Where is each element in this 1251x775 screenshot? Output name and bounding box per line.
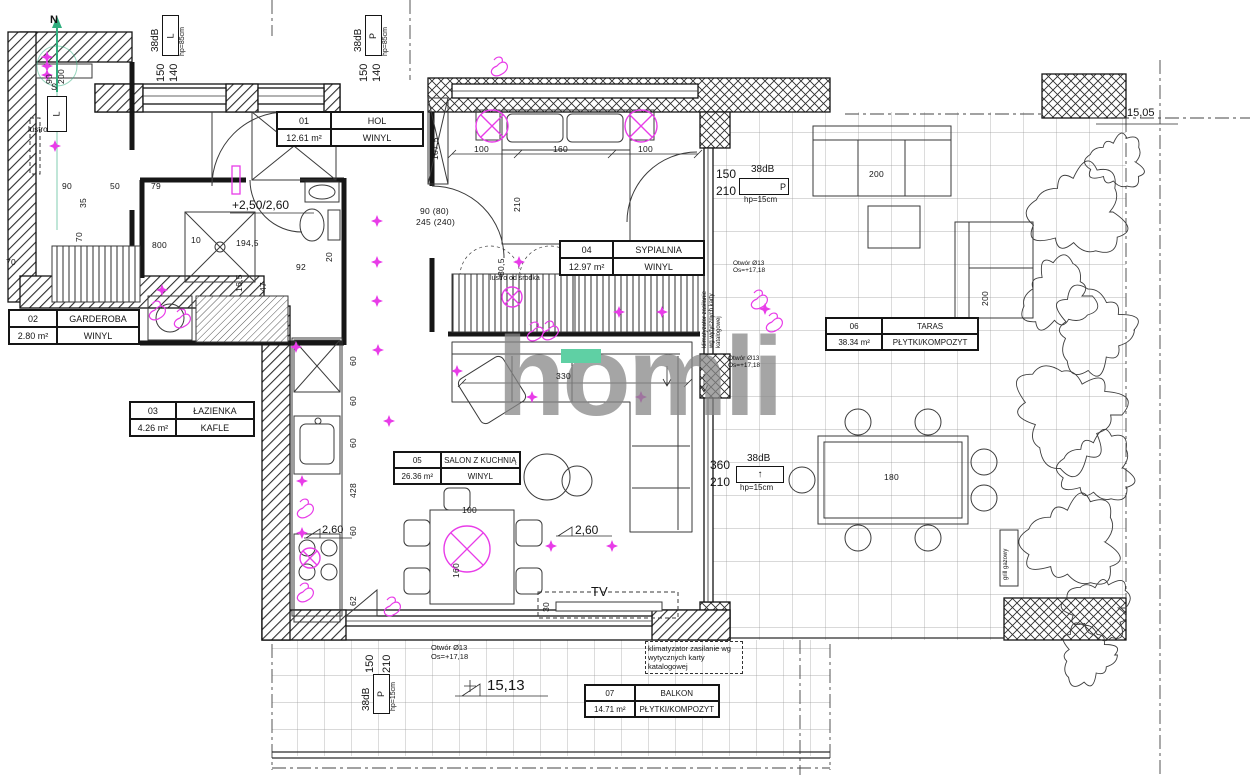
level-balkon-label: 15,13 (487, 677, 525, 694)
window-db-label: 38dB (361, 688, 372, 711)
north-label: N (50, 14, 58, 26)
floorplan-canvas: homli 10016010021080,5107,590 (80)245 (2… (0, 0, 1251, 775)
window-side-label: P (368, 32, 378, 38)
window-symbol: P (739, 178, 789, 195)
hole-label: Otwór Ø13 (728, 355, 760, 362)
window-hp-label: hp=85cm (179, 27, 186, 56)
room-floor: WINYL (331, 129, 423, 146)
ac-note-vertical: klimatyzator zasilanie wg wytycznych kar… (702, 286, 724, 348)
room-label-lazienka: 03 ŁAZIENKA 4.26 m² KAFLE (129, 401, 255, 437)
window-arrow-label: ↑ (758, 469, 763, 480)
window-symbol: ↑ (736, 466, 784, 483)
window-height-label: 140 (168, 64, 180, 82)
window-side-label: P (376, 691, 386, 697)
dimension-label: 245 (240) (416, 217, 455, 227)
window-hp-label: hp=15cm (740, 483, 773, 492)
dimension-label: 180 (884, 472, 899, 482)
room-number: 02 (9, 310, 57, 327)
hole-label: Otwór Ø13 (431, 643, 468, 652)
dimension-label: 194,5 (236, 238, 259, 248)
dimension-label: 30 (541, 602, 551, 612)
dimension-label: 60 (348, 438, 358, 448)
room-area: 4.26 m² (130, 419, 176, 436)
switch-symbol: L (47, 96, 67, 132)
window-width-label: 360 (710, 458, 730, 472)
room-name: ŁAZIENKA (176, 402, 254, 419)
room-floor: PŁYTKI/KOMPOZYT (882, 334, 978, 350)
hole-annotation: Otwór Ø13 Os=+17,18 (431, 643, 468, 661)
level-taras-label: 15,05 (1127, 107, 1155, 119)
window-width-label: 150 (364, 655, 376, 673)
window-symbol: L (162, 15, 179, 56)
window-db-label: 38dB (353, 29, 364, 52)
room-area: 38.34 m² (826, 334, 882, 350)
room-label-sypialnia: 04 SYPIALNIA 12.97 m² WINYL (559, 240, 705, 276)
window-height-label: 210 (710, 475, 730, 489)
window-db-label: 38dB (150, 29, 161, 52)
window-height-label: 210 (381, 655, 393, 673)
room-name: SALON Z KUCHNIĄ (441, 452, 520, 468)
dimension-label: 100 (474, 144, 489, 154)
window-symbol: P (373, 674, 390, 714)
hole-level-label: Os=+17,18 (733, 267, 765, 274)
room-name: GARDEROBA (57, 310, 139, 327)
dimension-label: 92 (296, 262, 306, 272)
bedroom-furniture (428, 98, 698, 332)
room-area: 12.61 m² (277, 129, 331, 146)
dimension-label: 210 (512, 197, 522, 212)
homli-watermark-accent (561, 349, 601, 363)
level-kitchen-label: 2,60 (322, 524, 343, 536)
room-name: HOL (331, 112, 423, 129)
mirror-inside-label: lustro od środka (490, 275, 540, 282)
level-bath-label: +2,50/2,60 (232, 198, 289, 212)
dimension-label: 800 (152, 240, 167, 250)
dimension-label: 90 (62, 181, 72, 191)
window-hp-label: hp=85cm (382, 27, 389, 56)
room-label-taras: 06 TARAS 38.34 m² PŁYTKI/KOMPOZYT (825, 317, 979, 351)
dimension-label: 160 (451, 563, 461, 578)
room-floor: WINYL (441, 468, 520, 484)
room-label-garderoba: 02 GARDEROBA 2.80 m² WINYL (8, 309, 140, 345)
dimension-label: 62 (348, 596, 358, 606)
window-side-label: L (165, 33, 175, 38)
dimension-label: 60 (348, 396, 358, 406)
room-floor: WINYL (57, 327, 139, 344)
dimension-label: 100 (462, 505, 477, 515)
dimension-label: 50 (110, 181, 120, 191)
room-floor: KAFLE (176, 419, 254, 436)
dimension-label: 428 (348, 483, 358, 498)
mirror-label: lustro (28, 125, 48, 134)
room-number: 07 (585, 685, 635, 701)
ac-note-box: klimatyzator zasilanie wg wytycznych kar… (645, 641, 743, 674)
window-width-label: 150 (716, 167, 736, 181)
room-number: 06 (826, 318, 882, 334)
dimension-label: 20 (324, 252, 334, 262)
window-hp-label: hp=15cm (744, 195, 777, 204)
hole-annotation: Otwór Ø13 Os=+17,18 (733, 260, 765, 274)
room-label-hol: 01 HOL 12.61 m² WINYL (276, 111, 424, 147)
window-width-label: 150 (155, 64, 167, 82)
dimension-label: 47 (258, 282, 268, 292)
room-area: 2.80 m² (9, 327, 57, 344)
dimension-label: 200 (56, 69, 66, 84)
window-height-label: 140 (371, 64, 383, 82)
dimension-label: 70 (74, 232, 84, 242)
hole-annotation: Otwór Ø13 Os=+17,18 (728, 355, 760, 369)
south-label: S (51, 82, 57, 92)
room-floor: PŁYTKI/KOMPOZYT (635, 701, 719, 717)
window-width-label: 150 (358, 64, 370, 82)
room-number: 05 (394, 452, 441, 468)
dimension-label: 16,5 (234, 274, 244, 292)
room-name: TARAS (882, 318, 978, 334)
room-label-salon: 05 SALON Z KUCHNIĄ 26.36 m² WINYL (393, 451, 521, 485)
hole-level-label: Os=+17,18 (431, 652, 468, 661)
dimension-label: 100 (638, 144, 653, 154)
dimension-label: 79 (151, 181, 161, 191)
room-area: 14.71 m² (585, 701, 635, 717)
room-area: 12.97 m² (560, 258, 613, 275)
room-name: SYPIALNIA (613, 241, 704, 258)
dimension-label: 60 (348, 526, 358, 536)
grill-label: grill gazowy (1003, 549, 1009, 580)
switch-label: L (52, 111, 62, 116)
window-side-label: P (780, 182, 786, 192)
room-floor: WINYL (613, 258, 704, 275)
dimension-label: 35 (78, 198, 88, 208)
dimension-label: 200 (869, 169, 884, 179)
room-label-balkon: 07 BALKON 14.71 m² PŁYTKI/KOMPOZYT (584, 684, 720, 718)
dimension-label: 160 (553, 144, 568, 154)
dimension-label: 90 (80) (420, 206, 449, 216)
window-height-label: 210 (716, 184, 736, 198)
homli-watermark: homli (497, 312, 781, 441)
hole-label: Otwór Ø13 (733, 260, 765, 267)
dimension-label: 330 (556, 371, 571, 381)
dimension-label: 70 (6, 257, 16, 267)
room-name: BALKON (635, 685, 719, 701)
window-symbol: P (365, 15, 382, 56)
window-db-label: 38dB (751, 164, 774, 175)
dimension-label: 10 (191, 235, 201, 245)
dimension-label: 200 (980, 291, 990, 306)
hole-level-label: Os=+17,18 (728, 362, 760, 369)
tv-label: TV (591, 584, 608, 599)
dimension-label: 80,5 (496, 258, 506, 276)
window-hp-label: hp=15cm (390, 682, 397, 711)
dimension-label: 60 (348, 356, 358, 366)
window-db-label: 38dB (747, 453, 770, 464)
room-number: 01 (277, 112, 331, 129)
dimension-label: 107,5 (430, 137, 440, 160)
room-number: 04 (560, 241, 613, 258)
room-number: 03 (130, 402, 176, 419)
room-area: 26.36 m² (394, 468, 441, 484)
level-salon-label: 2,60 (575, 523, 598, 537)
